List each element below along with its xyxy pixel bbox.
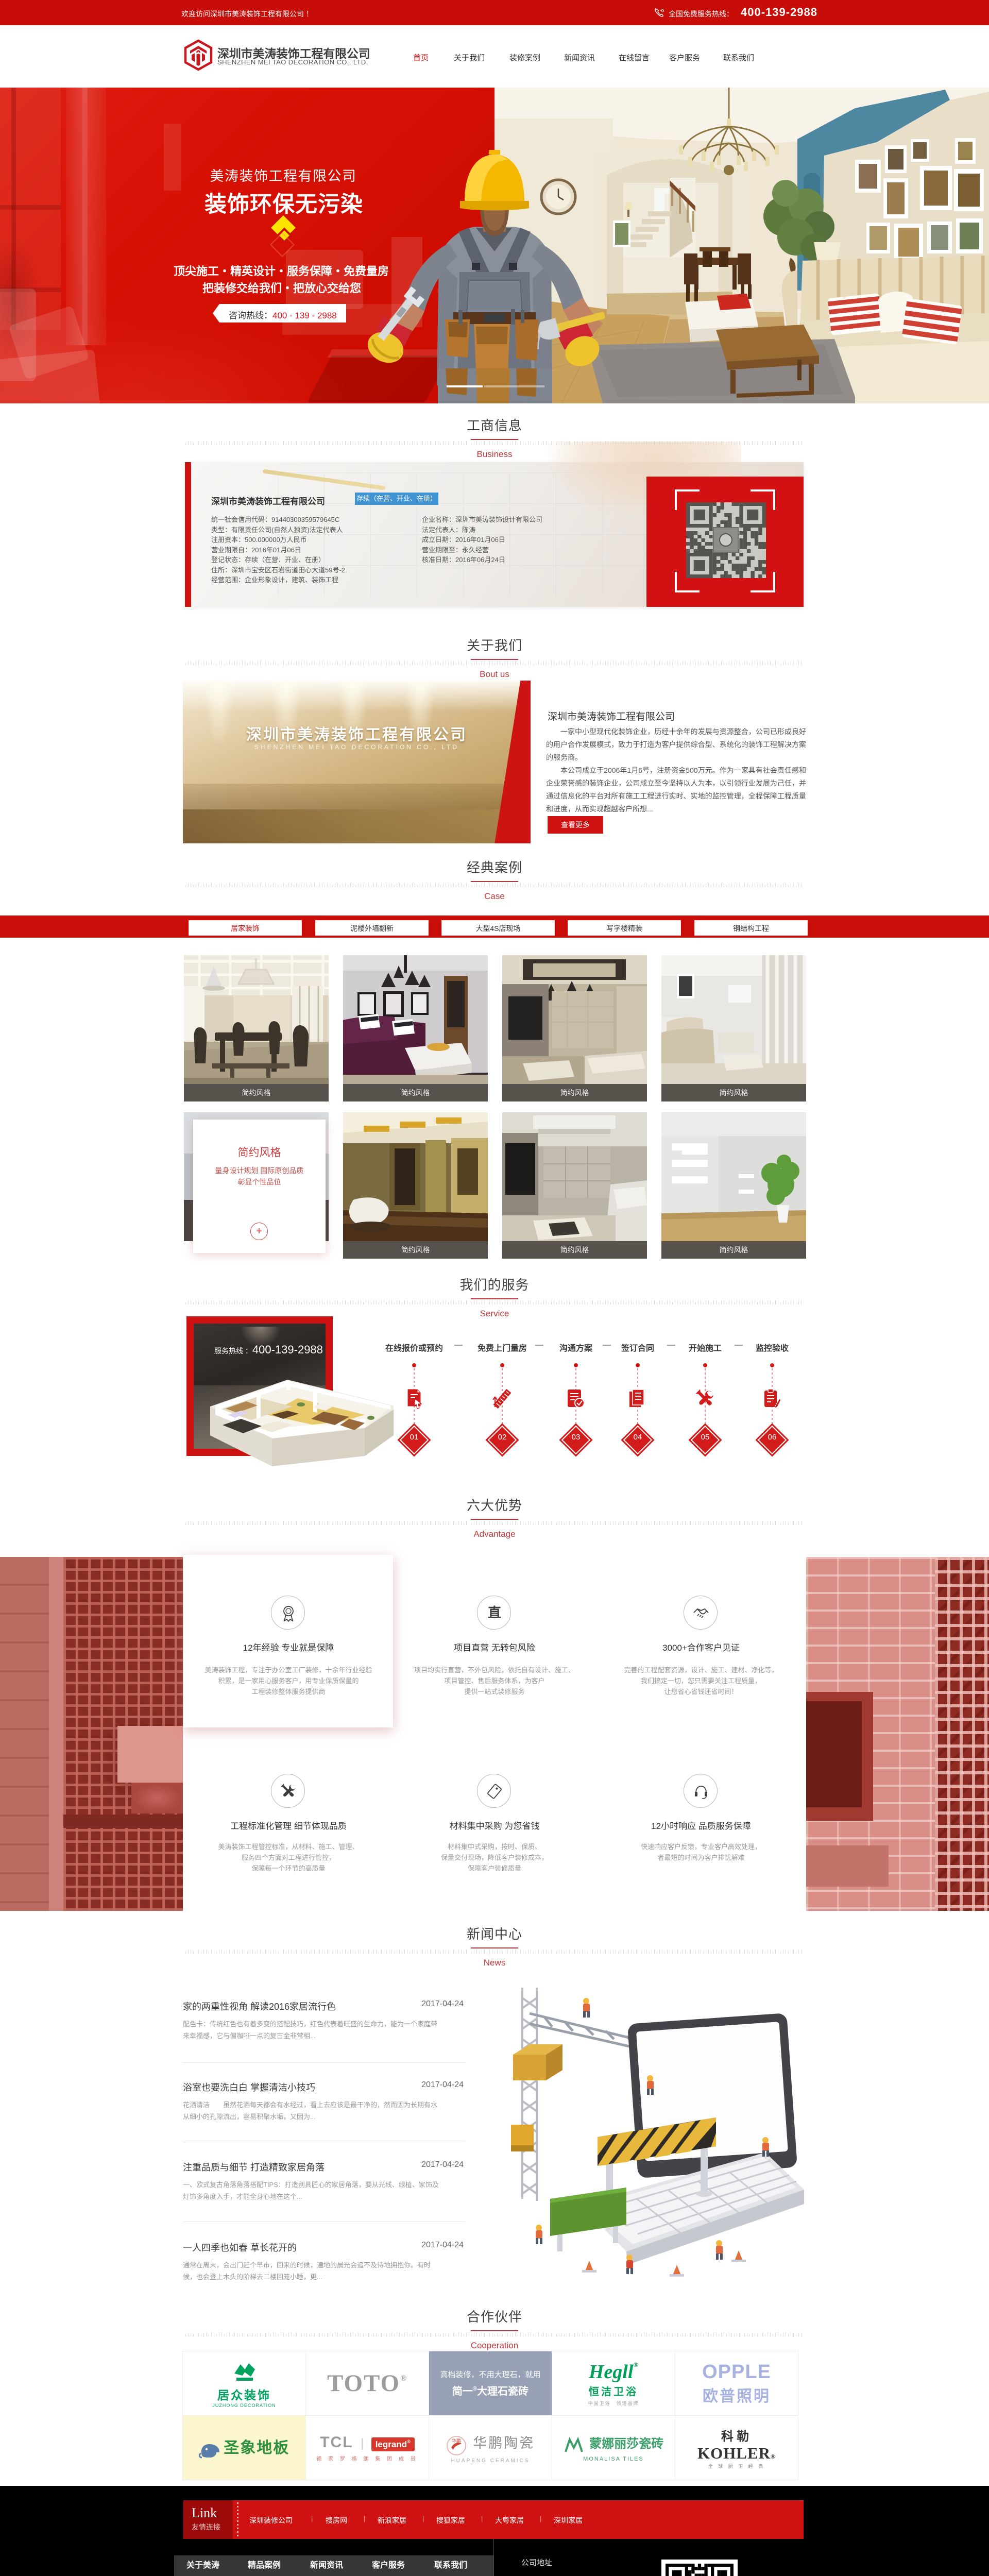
svg-text:华鹏: 华鹏 xyxy=(452,2438,461,2444)
svg-text:直: 直 xyxy=(488,1605,501,1620)
